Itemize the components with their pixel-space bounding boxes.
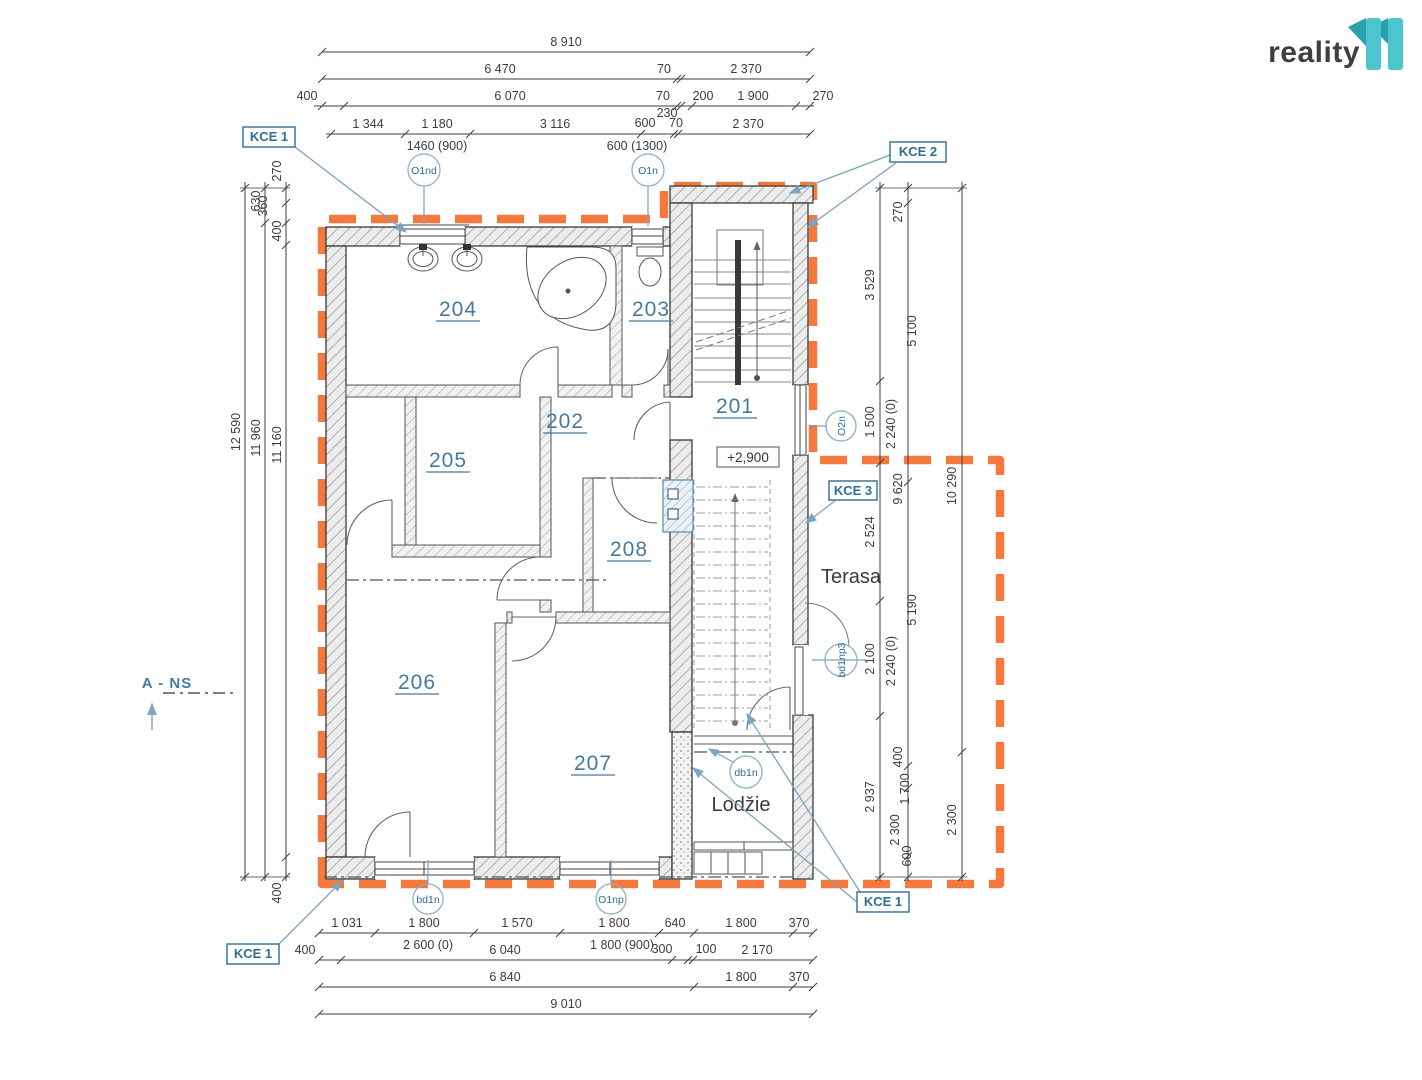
db1n-label: db1n: [734, 767, 758, 779]
dim-label: 270: [891, 202, 905, 223]
wall-right-mid: [793, 455, 808, 645]
dim-label: 9 010: [550, 997, 581, 1011]
o1nd-label: O1nd: [411, 165, 437, 177]
level-marker: +2,900: [727, 450, 769, 465]
dim-label: 2 300: [945, 804, 959, 835]
dim-label: 70: [656, 89, 670, 103]
door-207: [512, 617, 556, 661]
dim-label: 1 031: [331, 916, 362, 930]
dim-label: 360: [256, 196, 270, 217]
window-o1nd: [396, 225, 469, 246]
dim-label: 270: [270, 161, 284, 182]
dim-sublabel: 600 (1300): [607, 139, 667, 153]
wall-corridor-b: [558, 385, 612, 397]
o2n-label: O2n: [836, 416, 848, 436]
section-label: A - NS: [142, 675, 192, 692]
dim-label: 100: [696, 942, 717, 956]
wall-lodzie-right: [793, 715, 813, 879]
dim-label: 270: [813, 89, 834, 103]
dim-label: 2 370: [732, 117, 763, 131]
chimney-flue-1: [668, 489, 678, 499]
dim-label: 1 180: [421, 117, 452, 131]
wall-top-c: [663, 227, 670, 246]
construction-lines: [324, 478, 793, 877]
lodzie-parapet: [694, 842, 793, 850]
room-label-203: 203: [632, 298, 670, 321]
dim-label: 1 900: [737, 89, 768, 103]
lodzie-door-band: [694, 736, 793, 744]
dim-label: 3 116: [540, 117, 570, 131]
dim-label: 8 910: [550, 35, 581, 49]
stairs-lower: [694, 480, 770, 730]
stair-break-line: [696, 310, 791, 350]
dim-opening-label: 2 240 (0): [884, 636, 898, 686]
room-label-202: 202: [546, 410, 584, 433]
window-o2n: [793, 385, 808, 455]
kce1-top-label: KCE 1: [250, 129, 288, 144]
bathtub: [526, 245, 618, 332]
stair-flight-edges: [694, 480, 770, 730]
logo-brand-text: reality: [1268, 36, 1360, 69]
db1n-leader: [709, 749, 733, 762]
wall-top-a: [326, 227, 400, 246]
door-206-window-swing: [365, 812, 410, 857]
dim-label: 2 170: [741, 943, 772, 957]
dim-label: 2 100: [863, 643, 877, 674]
dim-label: 370: [789, 916, 810, 930]
chimney-flue-2: [668, 509, 678, 519]
room-label-201: 201: [716, 395, 754, 418]
stair-divider: [735, 240, 741, 385]
kce3-label: KCE 3: [834, 483, 872, 498]
o1np-label: O1np: [598, 894, 624, 906]
toilet: [637, 247, 663, 286]
window-bd1n: [375, 857, 474, 879]
dim-label: 2 524: [863, 516, 877, 547]
dim-label: 400: [270, 883, 284, 904]
kce2-leader-b: [808, 163, 896, 227]
dim-label: 400: [270, 221, 284, 242]
wall-right-upper: [793, 203, 808, 385]
wall-207-top-b: [556, 612, 670, 623]
chimney-body: [663, 480, 693, 532]
stair-walkline-dot: [732, 720, 738, 726]
kce2-label: KCE 2: [899, 144, 937, 159]
dim-label: 1 570: [501, 916, 532, 930]
dimension-labels-bottom: 1 031 1 800 1 570 1 800 640 1 800 370 2 …: [295, 916, 810, 1011]
window-o1np: [560, 857, 659, 879]
dimensions-left: [240, 182, 290, 881]
wall-202-stub: [540, 600, 551, 612]
dim-label: 6 840: [489, 970, 520, 984]
bd1n-label: bd1n: [416, 894, 440, 906]
dim-opening-label: 2 240 (0): [884, 399, 898, 449]
sink-2: [452, 244, 482, 271]
floor-plan-canvas: 8 910 6 470 70 2 370 400 6 070 70 200 1 …: [0, 0, 1422, 1080]
door-203: [632, 349, 668, 385]
wall-stair-core-upper: [670, 203, 692, 397]
logo: reality: [1268, 18, 1403, 70]
wall-left: [326, 246, 346, 857]
dim-label: 5 190: [905, 594, 919, 625]
dim-label: 1 800: [598, 916, 629, 930]
dim-label: 2 370: [730, 62, 761, 76]
dim-label: 2 937: [863, 781, 877, 812]
dim-label: 6 040: [489, 943, 520, 957]
dim-label: 1 800: [408, 916, 439, 930]
lodzie-label: Lodžie: [712, 794, 771, 816]
door-205: [347, 500, 392, 545]
dim-label: 1 700: [898, 773, 912, 804]
dim-sublabel: 2 600 (0): [403, 938, 453, 952]
dim-label: 11 160: [270, 426, 284, 463]
wall-lodzie-left: [672, 732, 692, 879]
dim-label: 400: [297, 89, 318, 103]
logo-bar-2: [1388, 18, 1403, 70]
dim-label: 400: [891, 747, 905, 768]
room-label-207: 207: [574, 752, 612, 775]
kce1-bottom-right-label: KCE 1: [864, 894, 902, 909]
floor-plan-page: 8 910 6 470 70 2 370 400 6 070 70 200 1 …: [0, 0, 1422, 1080]
dim-label: 600: [900, 846, 914, 867]
wall-stairwell-top: [670, 186, 813, 203]
dim-label: 11 960: [249, 419, 263, 456]
bd1np3-label: bd1np3: [836, 642, 848, 677]
dim-label: 640: [665, 916, 686, 930]
dim-label: 6 470: [484, 62, 515, 76]
section-marker: A - NS: [142, 675, 237, 730]
dim-label: 1 800: [725, 916, 756, 930]
dim-label: 200: [693, 89, 714, 103]
o1n-label: O1n: [638, 165, 658, 177]
wall-corridor-d: [664, 385, 670, 397]
window-o1n: [632, 227, 663, 246]
dim-label: 370: [789, 970, 810, 984]
dimension-labels-left: 12 590 630 11 960 270 360 400 11 160 400: [229, 161, 284, 904]
wall-corridor-a: [346, 385, 520, 397]
dim-label: 9 620: [891, 473, 905, 504]
dim-label: 5 100: [905, 315, 919, 346]
kce2-leader-a: [790, 155, 890, 193]
door-204: [520, 347, 558, 385]
wall-208-left: [583, 478, 593, 612]
stair-walkline-start: [754, 375, 760, 381]
dim-label: 70: [657, 62, 671, 76]
room-label-208: 208: [610, 538, 648, 561]
stairs-upper: [694, 230, 791, 385]
wall-bottom-b: [474, 857, 560, 879]
dim-sublabel: 1460 (900): [407, 139, 467, 153]
terasa-label: Terasa: [821, 566, 882, 588]
dim-label: 10 290: [945, 467, 959, 505]
dim-label: 1 800: [725, 970, 756, 984]
wall-bottom-a: [326, 857, 375, 879]
dim-label: 3 529: [863, 269, 877, 300]
wall-205-bottom: [392, 545, 540, 557]
wall-207-top-a: [507, 612, 512, 623]
dimension-labels-right: 3 529 1 500 2 524 2 100 2 937 2 240 (0) …: [863, 202, 959, 867]
dim-label: 1 500: [863, 406, 877, 437]
dim-label: 2 300: [888, 814, 902, 845]
sink-1: [408, 244, 438, 271]
dim-label: 400: [295, 943, 316, 957]
stair-treads-upper: [694, 260, 791, 382]
dim-label: 300: [652, 942, 673, 956]
dim-label: 600: [635, 116, 656, 130]
dim-label: 6 070: [494, 89, 525, 103]
kce3-leader: [806, 500, 836, 523]
wall-top-b: [465, 227, 632, 246]
logo-bar-1: [1366, 18, 1381, 70]
dim-label: 70: [669, 116, 683, 130]
dim-extension: [875, 188, 967, 877]
dim-label: 12 590: [229, 413, 243, 451]
kce1-bl-leader: [279, 881, 342, 944]
wall-bottom-c: [659, 857, 672, 879]
room-label-204: 204: [439, 298, 477, 321]
wall-206-207: [495, 623, 506, 857]
wall-205-left: [405, 397, 416, 545]
door-206: [497, 557, 540, 600]
dimensions-right: [875, 182, 967, 881]
door-208: [612, 478, 657, 523]
room-label-206: 206: [398, 671, 436, 694]
chimney: [663, 480, 693, 532]
dimension-labels-top: 8 910 6 470 70 2 370 400 6 070 70 200 1 …: [297, 35, 834, 153]
door-202: [634, 402, 670, 440]
dim-sublabel: 1 800 (900): [590, 938, 654, 952]
wall-corridor-c: [622, 385, 632, 397]
stair-treads-lower: [696, 487, 768, 721]
dim-label: 1 344: [352, 117, 383, 131]
kce1-bottom-left-label: KCE 1: [234, 946, 272, 961]
room-label-205: 205: [429, 449, 467, 472]
